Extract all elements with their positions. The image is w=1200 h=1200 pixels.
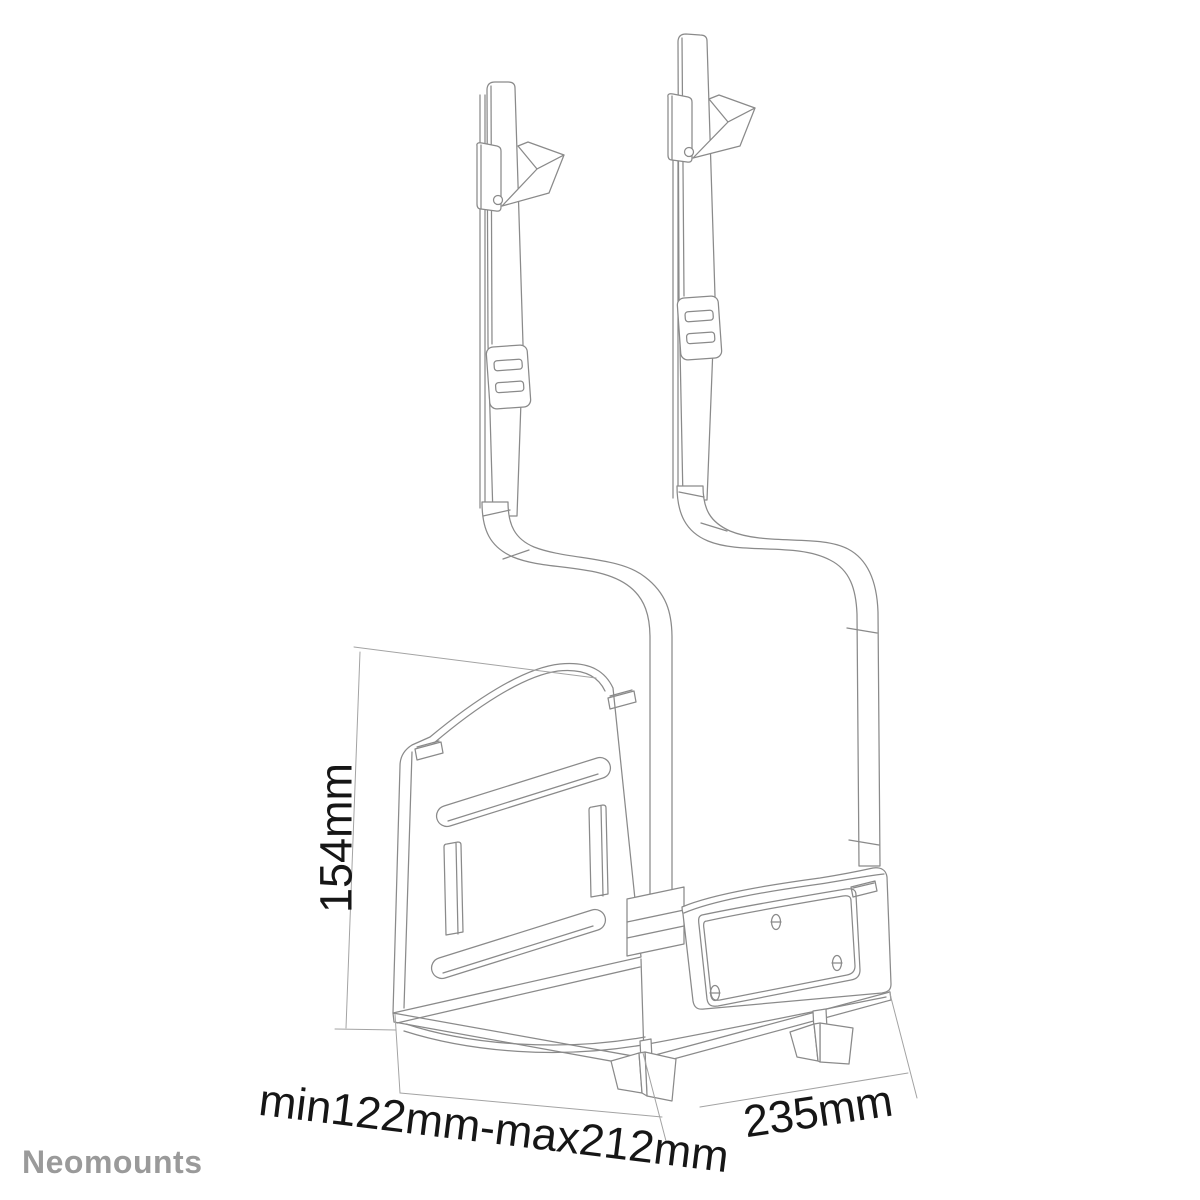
height-dimension-label: 154mm [314, 763, 359, 913]
left-strap-hook [477, 142, 564, 211]
right-hanging-strap [668, 34, 880, 866]
line-drawing-canvas [0, 0, 1200, 1200]
cpu-holder-side-panel [682, 868, 891, 1009]
back-panel-outline [393, 664, 641, 1013]
cpu-holder-back-panel [393, 664, 641, 1023]
brand-logo: Neomounts [22, 1146, 203, 1178]
cpu-holder-technical-drawing: 154mm min122mm-max212mm 235mm Neomounts [0, 0, 1200, 1200]
left-strap-buckle [486, 345, 531, 410]
left-strap-anchor [627, 887, 684, 956]
right-strap-s-curve [677, 486, 880, 866]
adjustment-knob-side [790, 1009, 853, 1064]
right-strap-buckle [677, 296, 722, 361]
base-front-left-edge [393, 1013, 644, 1067]
left-hook-rivet [494, 196, 503, 205]
right-strap-hook [668, 94, 755, 162]
right-hook-rivet [685, 148, 694, 157]
left-hanging-strap [477, 82, 564, 516]
